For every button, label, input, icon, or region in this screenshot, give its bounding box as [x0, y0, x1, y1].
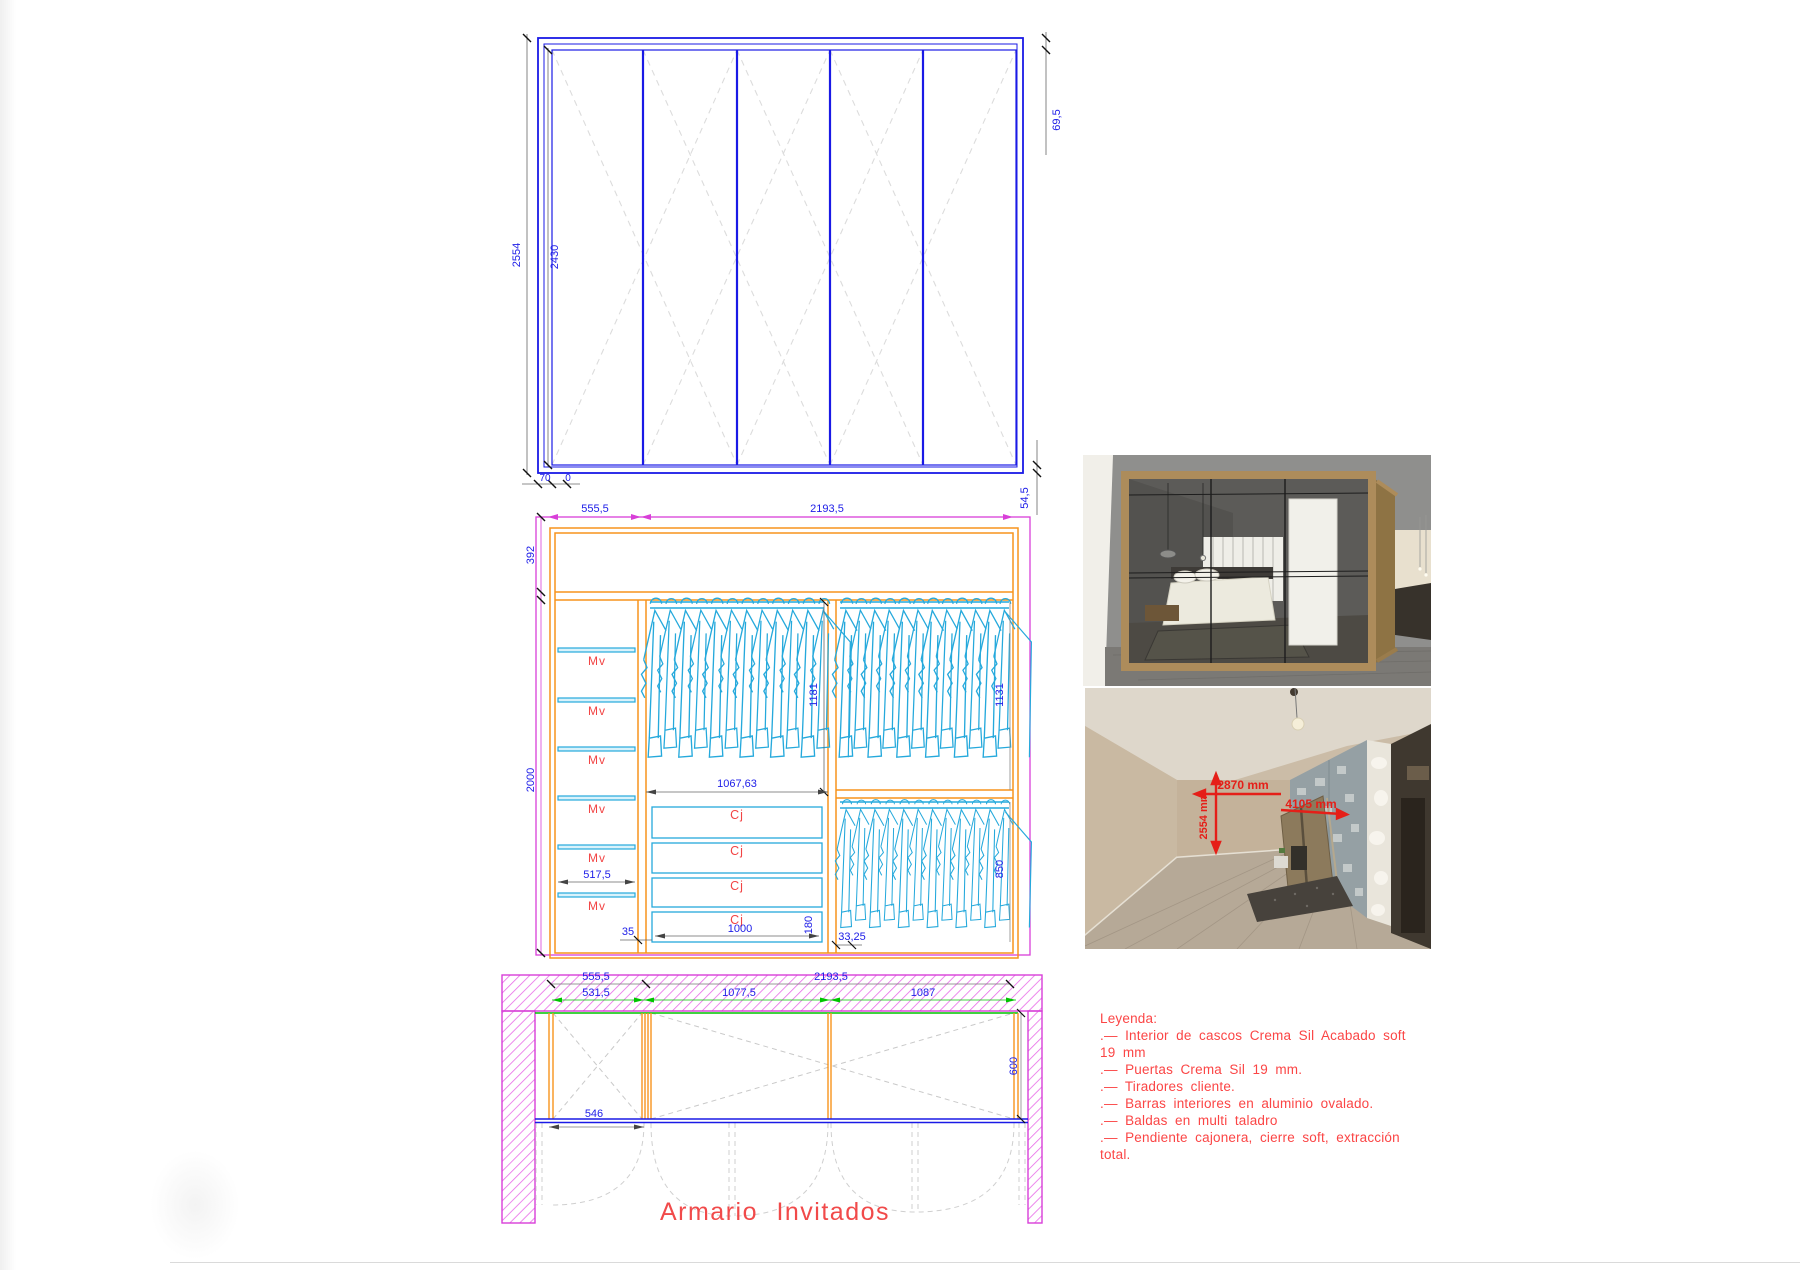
dim-drawer-width: 1000: [728, 923, 752, 935]
bed: [1163, 577, 1275, 625]
drawer-label: Cj: [730, 879, 744, 893]
legend-line: Leyenda:: [1100, 1010, 1435, 1027]
hanger: [966, 800, 985, 920]
shelf-label: Mv: [588, 802, 606, 816]
plan-dim-left-width: 555,5: [582, 971, 610, 983]
dim-left-width: 555,5: [581, 503, 609, 515]
plan-dim-bay-left: 531,5: [582, 987, 610, 999]
shelf-label: Mv: [588, 899, 606, 913]
legend-line: .— Puertas Crema Sil 19 mm.: [1100, 1061, 1435, 1078]
plan-dim-right-width: 2193,5: [814, 971, 848, 983]
paint-bucket: [1274, 856, 1288, 868]
front-line-blue: [535, 1119, 1028, 1123]
plan-diagonals: [553, 1013, 1014, 1119]
shelf: [558, 648, 635, 652]
drawer-label: Cj: [730, 844, 744, 858]
section-dim-lines: [537, 513, 1010, 957]
site-dim-depth: 2870 mm: [1217, 778, 1268, 792]
hanger: [641, 598, 666, 757]
dim-top-gap: 69,5: [1051, 109, 1063, 130]
shelf-label: Mv: [588, 654, 606, 668]
site-dim-height: 2554 mm: [1198, 792, 1210, 839]
dim-rod-width: 1067,63: [717, 778, 757, 790]
dim-shelf-width: 517,5: [583, 869, 611, 881]
plan-dividers: [549, 1013, 1018, 1119]
hanger: [951, 800, 971, 928]
hanger: [864, 800, 884, 928]
plan-dim-depth: 600: [1008, 1057, 1020, 1075]
door-swing-dashes: [552, 50, 1016, 465]
shelf-label: Mv: [588, 851, 606, 865]
hanger: [937, 800, 956, 920]
hanging-rails: [650, 602, 1009, 808]
nightstand: [1145, 605, 1179, 621]
plan-dim-bay-right: 1087: [911, 987, 935, 999]
legend-line: .— Baldas en multi taladro: [1100, 1112, 1435, 1129]
shelf-label: Mv: [588, 753, 606, 767]
dim-top-height: 392: [525, 546, 537, 564]
dim-lower-rod-height: 850: [994, 860, 1006, 878]
drawing-title: Armario Invitados: [630, 1198, 920, 1227]
legend-line: .— Pendiente cajonera, cierre soft, extr…: [1100, 1129, 1435, 1146]
plan-dim-bay-mid: 1077,5: [722, 987, 756, 999]
legend-line: .— Tiradores cliente.: [1100, 1078, 1435, 1095]
dim-bottom-offset: 70: [539, 473, 551, 484]
plan-dim-door-width: 546: [585, 1108, 603, 1120]
legend: Leyenda:.— Interior de cascos Crema Sil …: [1100, 1010, 1435, 1163]
bottom-divider-line: [170, 1262, 1800, 1263]
render-photo: [1083, 455, 1431, 686]
page: 2554 2430 69,5 54,5 70 0: [0, 0, 1800, 1270]
scan-edge-artifact: [0, 0, 16, 1270]
legend-line: .— Interior de cascos Crema Sil Acabado …: [1100, 1027, 1435, 1044]
hanger: [850, 800, 869, 920]
drawer-label: Cj: [730, 808, 744, 822]
shelf: [558, 698, 635, 702]
hanger: [908, 800, 927, 920]
dim-body-height: 2000: [525, 768, 537, 792]
shelf: [558, 845, 635, 849]
hanger: [922, 800, 942, 928]
dim-base-left: 35: [622, 926, 634, 938]
shelf: [558, 796, 635, 800]
site-photo-art: 2870 mm 2554 mm 4105 mm: [1085, 688, 1431, 949]
dim-door-height: 2430: [549, 245, 561, 269]
dim-total-height: 2554: [511, 243, 523, 267]
hanger: [835, 800, 855, 928]
tool-box: [1291, 846, 1307, 870]
hanger: [893, 800, 913, 928]
scan-smudge: [150, 1150, 240, 1260]
wardrobe-frame: [538, 38, 1023, 473]
elevation-dim-lines: [522, 32, 1050, 515]
dim-right-rod-height: 1131: [994, 683, 1006, 707]
shelf: [558, 747, 635, 751]
dim-left-rod-height: 1181: [808, 683, 820, 707]
legend-line: .— Barras interiores en aluminio ovalado…: [1100, 1095, 1435, 1112]
shelf-unit: [1401, 798, 1425, 933]
dim-base-right: 33,25: [838, 931, 866, 943]
shelf-label: Mv: [588, 704, 606, 718]
shelf: [558, 893, 635, 897]
dim-right-width: 2193,5: [810, 503, 844, 515]
legend-line: 19 mm: [1100, 1044, 1435, 1061]
interior-section-drawing: MvMvMvMvMvMv CjCjCjCj 555,5: [500, 495, 1080, 970]
site-photo: 2870 mm 2554 mm 4105 mm: [1085, 688, 1431, 949]
render-photo-art: [1083, 455, 1431, 686]
site-dim-width: 4105 mm: [1285, 797, 1336, 811]
dim-drawer-height: 180: [803, 916, 815, 934]
hanger: [879, 800, 898, 920]
legend-line: total.: [1100, 1146, 1435, 1163]
dim-bottom-zero: 0: [565, 473, 571, 484]
drawers: CjCjCjCj: [652, 807, 822, 942]
elevation-drawing: 2554 2430 69,5 54,5 70 0: [500, 20, 1080, 525]
